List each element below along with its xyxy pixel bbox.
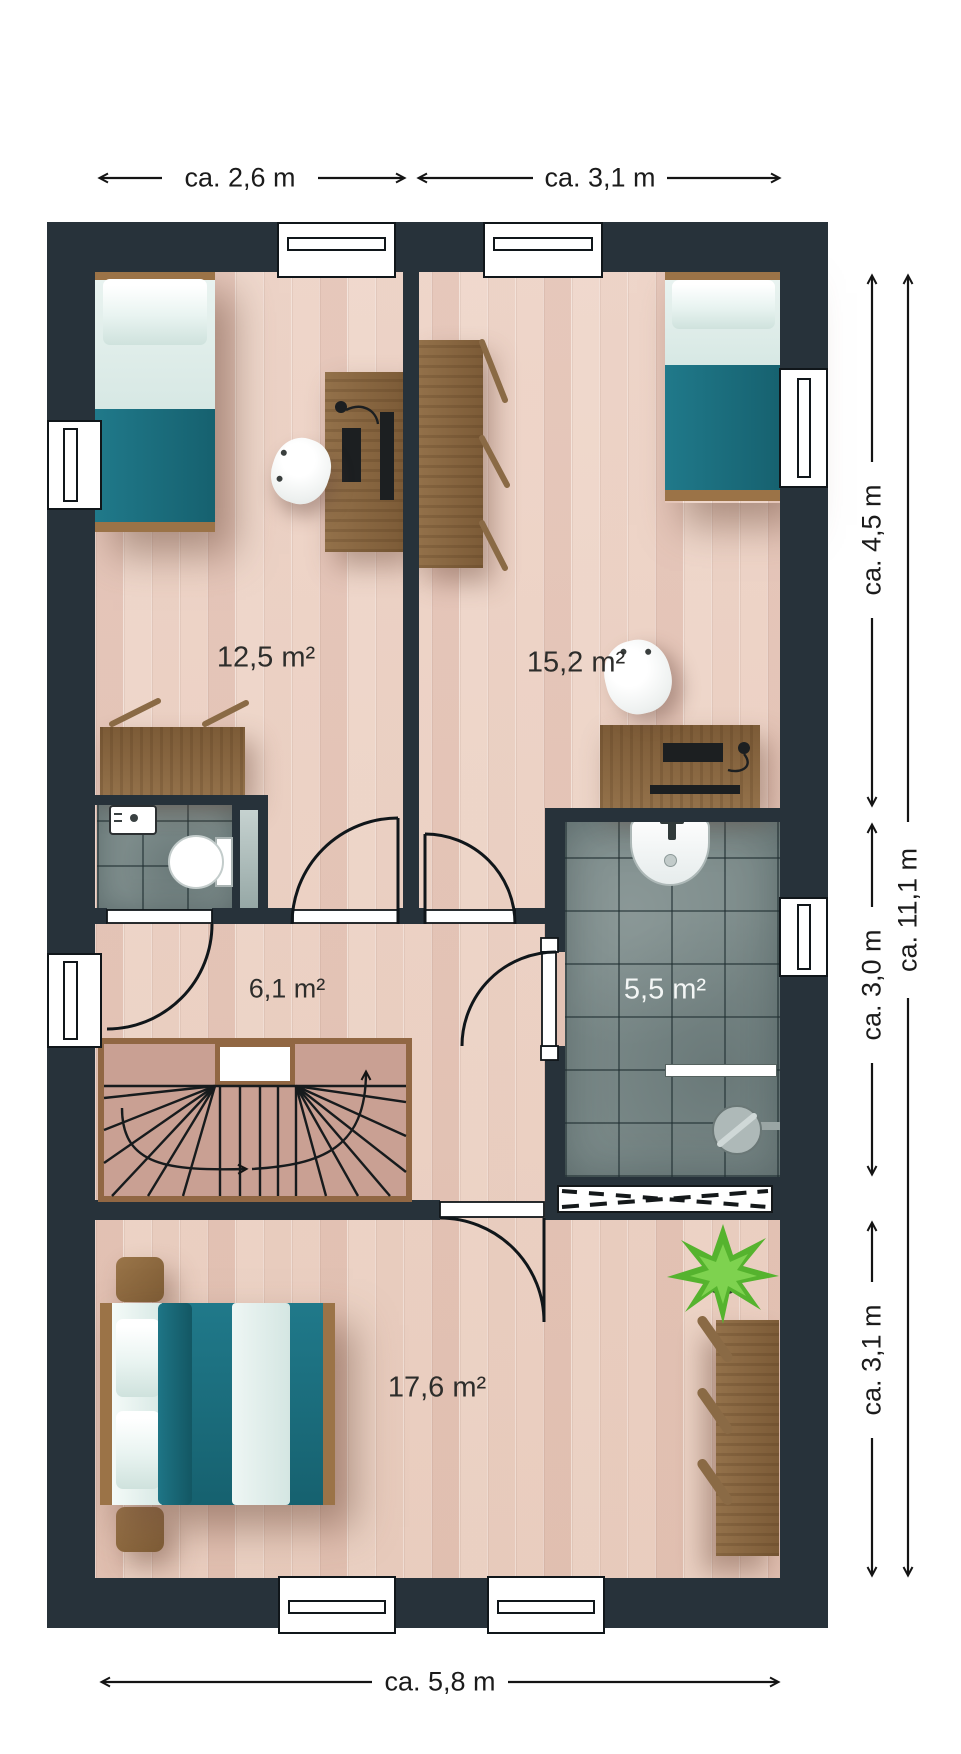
toilet-icon bbox=[169, 836, 232, 888]
door-thresholds bbox=[107, 910, 558, 1217]
area-label-bedroom-top-right: 15,2 m² bbox=[527, 647, 625, 680]
door-swings bbox=[107, 818, 556, 1322]
shower-head-icon bbox=[713, 1106, 780, 1154]
area-label-bedroom-bottom: 17,6 m² bbox=[388, 1372, 486, 1405]
area-label-hallway: 6,1 m² bbox=[249, 974, 326, 1005]
dimension-lines bbox=[100, 178, 908, 1682]
dimension-right-lower: ca. 3,1 m bbox=[857, 1304, 888, 1415]
dimension-top-left: ca. 2,6 m bbox=[184, 163, 295, 194]
dimension-right-middle: ca. 3,0 m bbox=[857, 929, 888, 1040]
hatch-strip bbox=[558, 1186, 772, 1212]
area-label-bathroom: 5,5 m² bbox=[624, 974, 706, 1007]
plan-annotations bbox=[0, 0, 961, 1754]
stair-treads bbox=[104, 1086, 406, 1196]
plant-icon bbox=[667, 1224, 779, 1324]
dimension-top-right: ca. 3,1 m bbox=[544, 163, 655, 194]
area-label-bedroom-top-left: 12,5 m² bbox=[217, 642, 315, 675]
floor-plan: 12,5 m² 15,2 m² 6,1 m² 5,5 m² 17,6 m² ca… bbox=[0, 0, 961, 1754]
dimension-right-upper: ca. 4,5 m bbox=[857, 484, 888, 595]
wc-sink-icon bbox=[110, 806, 156, 834]
mouse-icon bbox=[335, 401, 750, 771]
dimension-bottom: ca. 5,8 m bbox=[384, 1667, 495, 1698]
dimension-right-total: ca. 11,1 m bbox=[893, 848, 924, 972]
